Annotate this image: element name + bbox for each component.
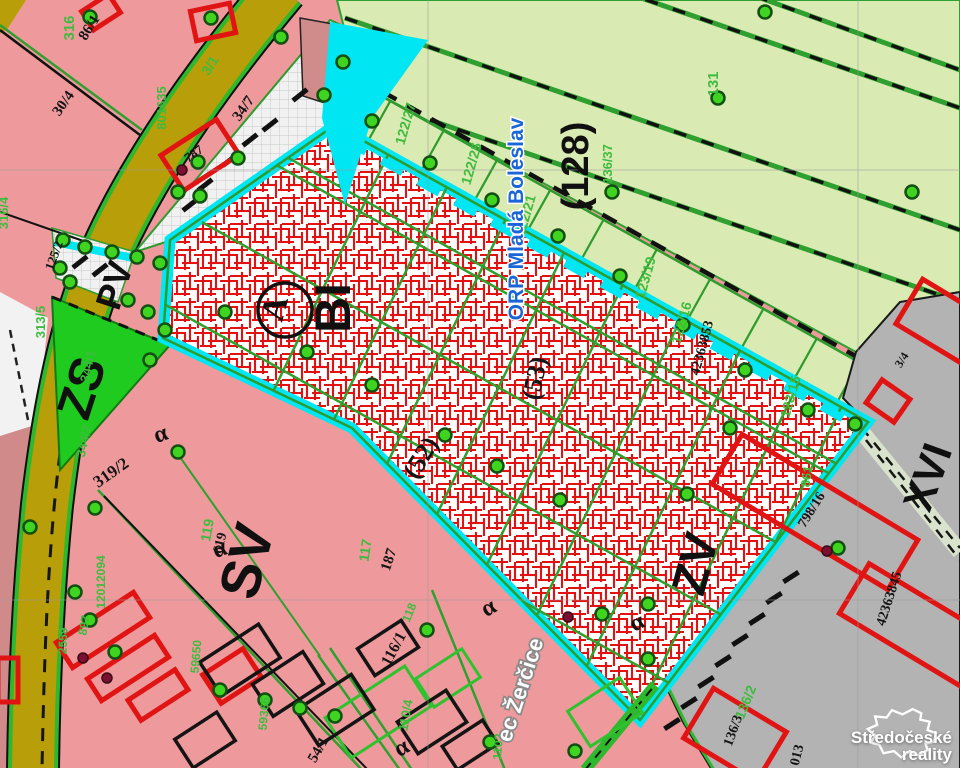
parcel-dot (421, 624, 434, 637)
parcel-dot (596, 608, 609, 621)
parcel-dot (802, 404, 815, 417)
maroon-dot (78, 653, 88, 663)
parcel-dot (106, 246, 119, 259)
parcel-dot (64, 276, 77, 289)
parcel-dot (491, 460, 504, 473)
parcel-label: 117 (356, 538, 375, 563)
parcel-dot (301, 346, 314, 359)
parcel-dot (366, 379, 379, 392)
parcel-dot (439, 429, 452, 442)
parcel-dot (329, 710, 342, 723)
parcel-dot (194, 190, 207, 203)
parcel-dot (724, 422, 737, 435)
cadastral-map-viewport[interactable]: ααααα PVZSSVBIZVA(128)XVI(52)(53)316316/… (0, 0, 960, 768)
parcel-label: 313/5 (33, 306, 48, 339)
parcel-dot (214, 684, 227, 697)
parcel-dot (337, 56, 350, 69)
parcel-dot (294, 702, 307, 715)
parcel-label: 861 (798, 465, 816, 489)
parcel-dot (642, 598, 655, 611)
parcel-label: 131 (705, 71, 722, 96)
parcel-dot (154, 257, 167, 270)
parcel-dot (172, 446, 185, 459)
special-label: ORP Mladá Boleslav (505, 117, 528, 320)
parcel-dot (906, 186, 919, 199)
parcel-dot (486, 194, 499, 207)
parcel-dot (554, 494, 567, 507)
parcel-dot (109, 646, 122, 659)
parcel-dot (142, 306, 155, 319)
parcel-label: 316 (61, 15, 78, 40)
zone-label: BI (305, 283, 361, 333)
parcel-dot (131, 251, 144, 264)
parcel-label: 59366 (256, 696, 273, 731)
parcel-label: 801635 (154, 86, 169, 129)
parcel-dot (552, 230, 565, 243)
maroon-dot (822, 546, 832, 556)
parcel-dot (275, 31, 288, 44)
parcel-dot (232, 152, 245, 165)
parcel-dot (219, 306, 232, 319)
parcel-dot (739, 364, 752, 377)
parcel-dot (79, 241, 92, 254)
parcel-label: 316/4 (0, 196, 11, 229)
parcel-label: 2559 (56, 627, 71, 654)
parcel-label: 136/37 (600, 144, 615, 184)
parcel-dot (159, 324, 172, 337)
parcel-dot (318, 89, 331, 102)
parcel-dot (832, 542, 845, 555)
parcel-dot (849, 418, 862, 431)
logo-line2: reality (851, 746, 952, 763)
maroon-dot (177, 165, 187, 175)
parcel-label: 12012094 (94, 555, 108, 609)
parcel-dot (614, 270, 627, 283)
parcel-dot (569, 745, 582, 758)
parcel-dot (205, 12, 218, 25)
zoning-map: ααααα PVZSSVBIZVA(128)XVI(52)(53)316316/… (0, 0, 960, 768)
parcel-dot (681, 488, 694, 501)
parcel-dot (172, 186, 185, 199)
parcel-dot (24, 521, 37, 534)
parcel-dot (366, 115, 379, 128)
stredoceske-reality-logo: Středočeské reality (844, 699, 954, 765)
parcel-dot (69, 586, 82, 599)
logo-line1: Středočeské (851, 729, 952, 746)
parcel-dot (606, 186, 619, 199)
parcel-dot (144, 354, 157, 367)
parcel-dot (89, 502, 102, 515)
parcel-dot (424, 157, 437, 170)
maroon-dot (102, 673, 112, 683)
parcel-dot (642, 653, 655, 666)
zone-label: (128) (555, 122, 597, 211)
parcel-label: 59650 (188, 639, 205, 674)
maroon-dot (563, 612, 573, 622)
parcel-dot (759, 6, 772, 19)
